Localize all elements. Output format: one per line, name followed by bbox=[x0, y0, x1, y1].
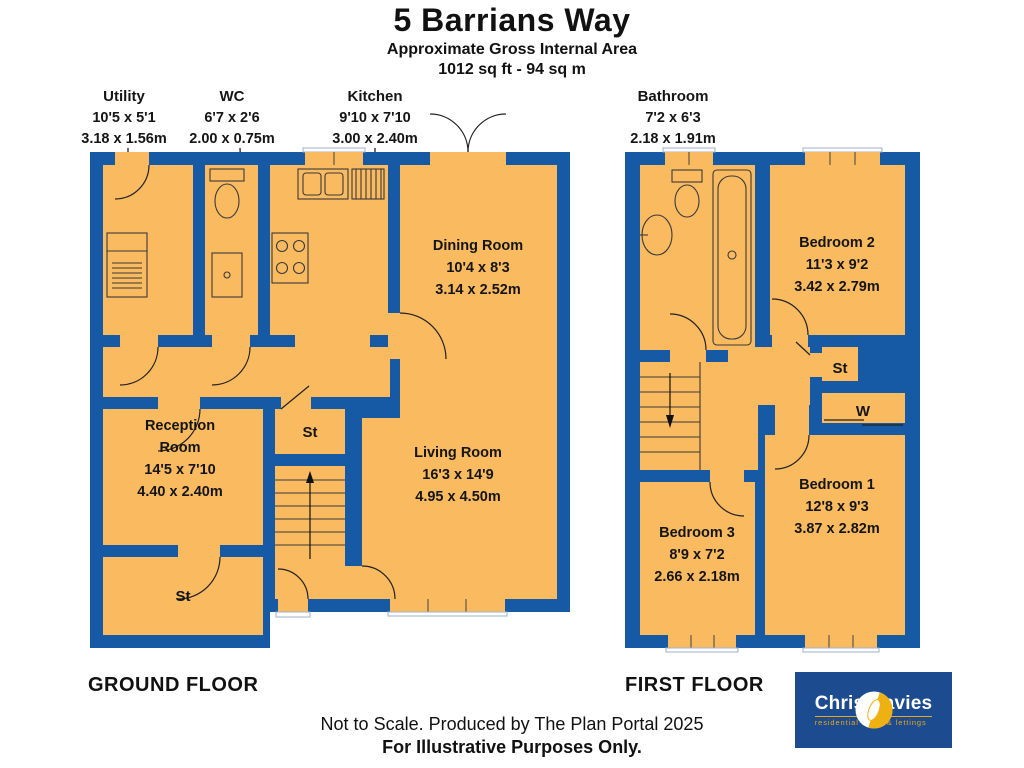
ground-floor-plan: Utility 10'5 x 5'1 3.18 x 1.56m WC 6'7 x… bbox=[60, 85, 580, 670]
front-door-threshold bbox=[276, 612, 310, 617]
bedroom2-imperial: 11'3 x 9'2 bbox=[806, 257, 869, 273]
header: 5 Barrians Way Approximate Gross Interna… bbox=[0, 2, 1024, 79]
living-window bbox=[390, 599, 505, 612]
dining-metric: 3.14 x 2.52m bbox=[435, 282, 520, 298]
reception-metric: 4.40 x 2.40m bbox=[137, 484, 222, 500]
dining-imperial: 10'4 x 8'3 bbox=[446, 260, 509, 276]
wc-imperial: 6'7 x 2'6 bbox=[204, 110, 259, 126]
french-door-opening bbox=[430, 152, 506, 165]
storage-front-label: St bbox=[176, 588, 191, 605]
kitchen-metric: 3.00 x 2.40m bbox=[332, 131, 417, 147]
bathroom-label: Bathroom bbox=[638, 88, 709, 105]
kitchen-hall-opening bbox=[295, 335, 370, 347]
bedroom3-window bbox=[668, 635, 736, 648]
first-floor-caption: FIRST FLOOR bbox=[625, 674, 764, 697]
floorplan-page: 5 Barrians Way Approximate Gross Interna… bbox=[0, 0, 1024, 768]
wardrobe-label: W bbox=[856, 403, 871, 420]
bathroom-imperial: 7'2 x 6'3 bbox=[645, 110, 700, 126]
agency-logo: Chris Davies residential sales & letting… bbox=[795, 672, 952, 748]
bathroom-metric: 2.18 x 1.91m bbox=[630, 131, 715, 147]
storage-hall-label: St bbox=[303, 424, 318, 441]
front-door-opening bbox=[278, 599, 308, 612]
bedroom3-metric: 2.66 x 2.18m bbox=[654, 569, 739, 585]
living-name: Living Room bbox=[414, 445, 502, 461]
reception-imperial: 14'5 x 7'10 bbox=[144, 462, 215, 478]
subtitle-size: 1012 sq ft - 94 sq m bbox=[0, 61, 1024, 79]
bedroom1-window bbox=[805, 635, 877, 648]
utility-metric: 3.18 x 1.56m bbox=[81, 131, 166, 147]
bedroom3-window-sill bbox=[666, 648, 738, 652]
bedroom2-window-sill bbox=[803, 148, 882, 152]
utility-room bbox=[103, 165, 193, 335]
bedroom2-metric: 3.42 x 2.79m bbox=[794, 279, 879, 295]
bedroom1-window-sill bbox=[803, 648, 879, 652]
utility-hall-door bbox=[120, 335, 158, 347]
wc-hall-door bbox=[212, 335, 250, 347]
bedroom3-imperial: 8'9 x 7'2 bbox=[669, 547, 724, 563]
reception-name1: Reception bbox=[145, 418, 215, 434]
first-floor-plan: Bathroom 7'2 x 6'3 2.18 x 1.91m bbox=[610, 85, 950, 670]
french-door-right-arc bbox=[468, 114, 506, 152]
wc-metric: 2.00 x 0.75m bbox=[189, 131, 274, 147]
utility-label: Utility bbox=[103, 88, 145, 105]
utility-imperial: 10'5 x 5'1 bbox=[92, 110, 155, 126]
living-window-sill bbox=[388, 612, 507, 616]
page-title: 5 Barrians Way bbox=[0, 2, 1024, 39]
dining-hall-door bbox=[388, 313, 400, 359]
bedroom2-door bbox=[772, 335, 808, 347]
living-metric: 4.95 x 4.50m bbox=[415, 489, 500, 505]
storage-front-door bbox=[178, 545, 220, 557]
reception-name2: Room bbox=[159, 440, 200, 456]
dining-name: Dining Room bbox=[433, 238, 523, 254]
hallway-upper bbox=[103, 347, 390, 397]
utility-entry-opening bbox=[115, 152, 149, 165]
living-imperial: 16'3 x 14'9 bbox=[422, 467, 493, 483]
bedroom1-metric: 3.87 x 2.82m bbox=[794, 521, 879, 537]
agency-logo-icon bbox=[854, 690, 894, 730]
kitchen-window-sill bbox=[303, 148, 365, 152]
storage-hall-door bbox=[281, 397, 311, 409]
ground-floor-caption: GROUND FLOOR bbox=[88, 674, 258, 697]
storage-closet-door bbox=[810, 353, 822, 377]
kitchen-room bbox=[270, 165, 388, 335]
bedroom2-name: Bedroom 2 bbox=[799, 235, 875, 251]
reception-door bbox=[158, 397, 200, 409]
bedroom1-door bbox=[775, 405, 809, 435]
wc-label: WC bbox=[220, 88, 245, 105]
storage-closet-label: St bbox=[833, 360, 848, 377]
subtitle-area: Approximate Gross Internal Area bbox=[0, 41, 1024, 59]
bedroom3-name: Bedroom 3 bbox=[659, 525, 735, 541]
bedroom1-name: Bedroom 1 bbox=[799, 477, 875, 493]
wc-room bbox=[205, 165, 258, 335]
kitchen-imperial: 9'10 x 7'10 bbox=[339, 110, 410, 126]
kitchen-label: Kitchen bbox=[347, 88, 402, 105]
bedroom2-window bbox=[805, 152, 880, 165]
bedroom3-door bbox=[710, 470, 744, 482]
french-door-left-arc bbox=[430, 114, 468, 152]
bedroom1-imperial: 12'8 x 9'3 bbox=[805, 499, 868, 515]
bathroom-door bbox=[670, 350, 706, 362]
bathroom-window-sill bbox=[663, 148, 715, 152]
